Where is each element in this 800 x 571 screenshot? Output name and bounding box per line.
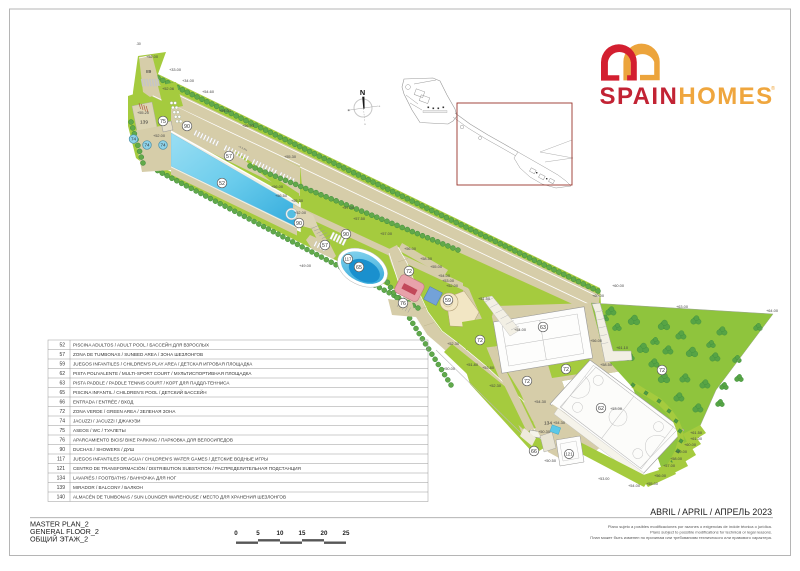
svg-text:+57.00: +57.00 [663, 463, 676, 468]
svg-text:+58.50: +58.50 [420, 256, 433, 261]
svg-text:90: 90 [59, 447, 65, 453]
svg-text:+56.50: +56.50 [275, 193, 288, 198]
svg-text:+57.00: +57.00 [342, 205, 355, 210]
svg-text:72: 72 [477, 338, 483, 344]
svg-text:+53.00: +53.00 [598, 477, 609, 481]
svg-text:APARCAMIENTO BICIS/ BIKE PARKI: APARCAMIENTO BICIS/ BIKE PARKING / ПАРКО… [73, 438, 233, 443]
svg-text:+58.50: +58.50 [600, 362, 613, 367]
svg-text:134: 134 [544, 421, 552, 427]
svg-text:74: 74 [131, 137, 137, 142]
svg-text:57: 57 [59, 352, 65, 358]
svg-text:+50.50: +50.50 [544, 458, 557, 463]
svg-text:+55.00: +55.00 [646, 481, 659, 486]
svg-text:ALMACÉN DE TUMBONAS / SUN LOU: ALMACÉN DE TUMBONAS / SUN LOUNGER WAREHO… [73, 494, 286, 500]
svg-text:+56.00: +56.00 [404, 246, 417, 251]
svg-text:0: 0 [234, 530, 238, 537]
svg-text:65: 65 [59, 390, 65, 396]
svg-text:CENTRO DE TRANSFORMACIÓN / DIS: CENTRO DE TRANSFORMACIÓN / DISTRIBUTION … [73, 465, 301, 471]
svg-text:15: 15 [299, 530, 306, 537]
svg-text:20: 20 [321, 530, 328, 537]
svg-text:5: 5 [256, 530, 260, 537]
svg-text:+54.00: +54.00 [628, 483, 641, 488]
svg-text:+52.30: +52.30 [489, 383, 502, 388]
svg-text:89: 89 [146, 69, 152, 75]
svg-text:ABRIL / APRIL / АПРЕЛЬ 2023: ABRIL / APRIL / АПРЕЛЬ 2023 [650, 507, 772, 517]
svg-text:75: 75 [59, 428, 65, 434]
svg-text:74: 74 [59, 419, 65, 425]
svg-text:90: 90 [184, 124, 190, 130]
svg-text:JUEGOS INFANTILES DE AGUA / CH: JUEGOS INFANTILES DE AGUA / CHILDREN’S W… [73, 457, 268, 462]
svg-text:+61.00: +61.00 [690, 436, 703, 441]
svg-text:117: 117 [57, 457, 65, 463]
svg-text:+54.30: +54.30 [553, 420, 566, 425]
svg-text:+64.00: +64.00 [766, 308, 779, 313]
svg-text:+59.00: +59.00 [675, 449, 688, 454]
svg-text:+61.50: +61.50 [690, 430, 703, 435]
svg-text:+54.00: +54.00 [219, 108, 232, 113]
svg-text:121: 121 [565, 452, 573, 457]
svg-text:52: 52 [59, 343, 65, 349]
svg-text:Plano sujeto a posibles modifi: Plano sujeto a posibles modificaciones p… [608, 524, 772, 529]
svg-text:+56.00: +56.00 [590, 338, 603, 343]
svg-text:+50.00: +50.00 [443, 366, 456, 371]
svg-text:90: 90 [296, 221, 302, 227]
svg-text:117: 117 [345, 257, 353, 262]
svg-text:72: 72 [659, 368, 665, 374]
svg-text:+57.00: +57.00 [380, 231, 393, 236]
svg-text:+50.30: +50.30 [538, 429, 551, 434]
svg-text:+53.00: +53.00 [610, 406, 623, 411]
svg-text:PISTA PADDLE / PADDLE TENNIS: PISTA PADDLE / PADDLE TENNIS COURT / КОР… [73, 381, 230, 386]
svg-text:DUCHAS / SHOWERS / ДУШ: DUCHAS / SHOWERS / ДУШ [73, 447, 134, 452]
svg-text:+57.50: +57.50 [353, 216, 366, 221]
svg-text:SPAINHOMES: SPAINHOMES [600, 83, 774, 110]
svg-text:План может быть изменен по при: План может быть изменен по причинам или … [590, 535, 772, 540]
svg-text:72: 72 [59, 409, 65, 415]
svg-text:140: 140 [57, 495, 66, 501]
svg-text:62: 62 [59, 371, 65, 377]
svg-text:59: 59 [445, 298, 451, 304]
svg-text:59: 59 [59, 362, 65, 368]
svg-text:Plans subject to possible modi: Plans subject to possible modifications … [650, 530, 772, 535]
svg-text:57: 57 [322, 243, 328, 249]
svg-text:ZONA VERDE / GREEN AREA / ЗЕЛЕ: ZONA VERDE / GREEN AREA / ЗЕЛЕНАЯ ЗОНА [73, 409, 176, 414]
svg-text:ENTRADA / ENTRÉE / ВХОД: ENTRADA / ENTRÉE / ВХОД [73, 399, 134, 405]
svg-text:JACUZZI / JACUZZI / ДЖАКУЗИ: JACUZZI / JACUZZI / ДЖАКУЗИ [73, 419, 140, 424]
svg-text:LAVAPIÉS / FOOTBATHS / ВАННОЧК: LAVAPIÉS / FOOTBATHS / ВАННОЧКА ДЛЯ НОГ [73, 475, 177, 481]
svg-text:62: 62 [598, 406, 604, 412]
svg-text:+56.00: +56.00 [271, 184, 284, 189]
svg-text:+53.80: +53.80 [482, 365, 495, 370]
svg-text:63: 63 [59, 381, 65, 387]
svg-text:+60.00: +60.00 [612, 283, 625, 288]
svg-text:+33.00: +33.00 [169, 67, 182, 72]
svg-text:+52.00: +52.00 [294, 210, 307, 215]
svg-text:+54.60: +54.60 [202, 89, 215, 94]
svg-text:76: 76 [400, 301, 406, 307]
svg-text:+56.00: +56.00 [654, 473, 667, 478]
svg-text:.30: .30 [136, 42, 141, 46]
svg-text:74: 74 [160, 143, 166, 148]
svg-text:75: 75 [160, 119, 166, 125]
svg-text:+51.50: +51.50 [478, 296, 491, 301]
svg-text:52: 52 [219, 181, 225, 187]
svg-text:+63.00: +63.00 [676, 304, 689, 309]
svg-text:ASEOS / WC / ТУАЛЕТЫ: ASEOS / WC / ТУАЛЕТЫ [73, 428, 126, 433]
svg-text:74: 74 [144, 143, 150, 148]
svg-text:+52.30: +52.30 [447, 341, 460, 346]
svg-text:139: 139 [140, 120, 148, 126]
svg-text:PISCINA ADULTOS / ADULT POOL: PISCINA ADULTOS / ADULT POOL / БАССЕЙН Д… [73, 341, 209, 348]
svg-text:63: 63 [540, 325, 546, 331]
svg-text:+61.10: +61.10 [616, 345, 629, 350]
svg-text:+55.30: +55.30 [291, 198, 304, 203]
svg-text:+56.00: +56.00 [242, 123, 255, 128]
svg-text:10: 10 [277, 530, 284, 537]
svg-text:+55.20: +55.20 [137, 110, 150, 115]
svg-text:+51.80: +51.80 [466, 362, 479, 367]
svg-text:+34.00: +34.00 [182, 78, 195, 83]
svg-text:72: 72 [406, 269, 412, 275]
svg-text:+54.00: +54.00 [514, 327, 527, 332]
svg-text:+54.30: +54.30 [534, 399, 547, 404]
svg-text:76: 76 [59, 438, 65, 444]
svg-text:139: 139 [57, 485, 66, 491]
svg-text:PISCINA INFANTIL / CHILDREN’S: PISCINA INFANTIL / CHILDREN’S POOL / ДЕТ… [73, 388, 207, 395]
svg-text:ZONA DE TUMBONAS / SUNBED AREA: ZONA DE TUMBONAS / SUNBED AREA / ЗОНА ШЕ… [73, 352, 203, 357]
svg-text:65: 65 [356, 265, 362, 271]
svg-text:MIRADOR / BALCONY / БАЛКОН: MIRADOR / BALCONY / БАЛКОН [73, 485, 143, 490]
svg-text:134: 134 [57, 476, 66, 482]
svg-text:+52.00: +52.00 [153, 133, 166, 138]
svg-text:+52.06: +52.06 [162, 86, 174, 91]
svg-text:JUEGOS INFANTILES / CHILDREN’S: JUEGOS INFANTILES / CHILDREN’S PLAY AREA… [73, 362, 253, 367]
svg-text:72: 72 [563, 367, 569, 373]
svg-text:N: N [360, 88, 365, 97]
svg-text:+52.00: +52.00 [146, 54, 159, 59]
svg-text:+58.00: +58.00 [670, 456, 683, 461]
svg-text:®: ® [771, 85, 775, 92]
svg-text:66: 66 [531, 449, 537, 455]
svg-text:121: 121 [57, 466, 66, 472]
svg-text:72: 72 [524, 379, 530, 385]
svg-text:90: 90 [343, 232, 349, 238]
svg-text:57: 57 [226, 154, 232, 160]
svg-text:66: 66 [59, 400, 65, 406]
svg-text:+52.00: +52.00 [446, 283, 459, 288]
svg-text:+60.00: +60.00 [592, 293, 605, 298]
svg-text:PISTA POLIVALENTE / MULTI-SPOR: PISTA POLIVALENTE / MULTI-SPORT COURT / … [73, 371, 252, 376]
svg-text:+55.00: +55.00 [430, 264, 443, 269]
svg-text:+49.00: +49.00 [299, 263, 312, 268]
svg-text:+60.00: +60.00 [684, 442, 697, 447]
svg-text:+55.30: +55.30 [284, 154, 297, 159]
svg-text:25: 25 [343, 530, 350, 537]
svg-text:ОБЩИЙ ЭТАЖ_2: ОБЩИЙ ЭТАЖ_2 [30, 535, 88, 544]
